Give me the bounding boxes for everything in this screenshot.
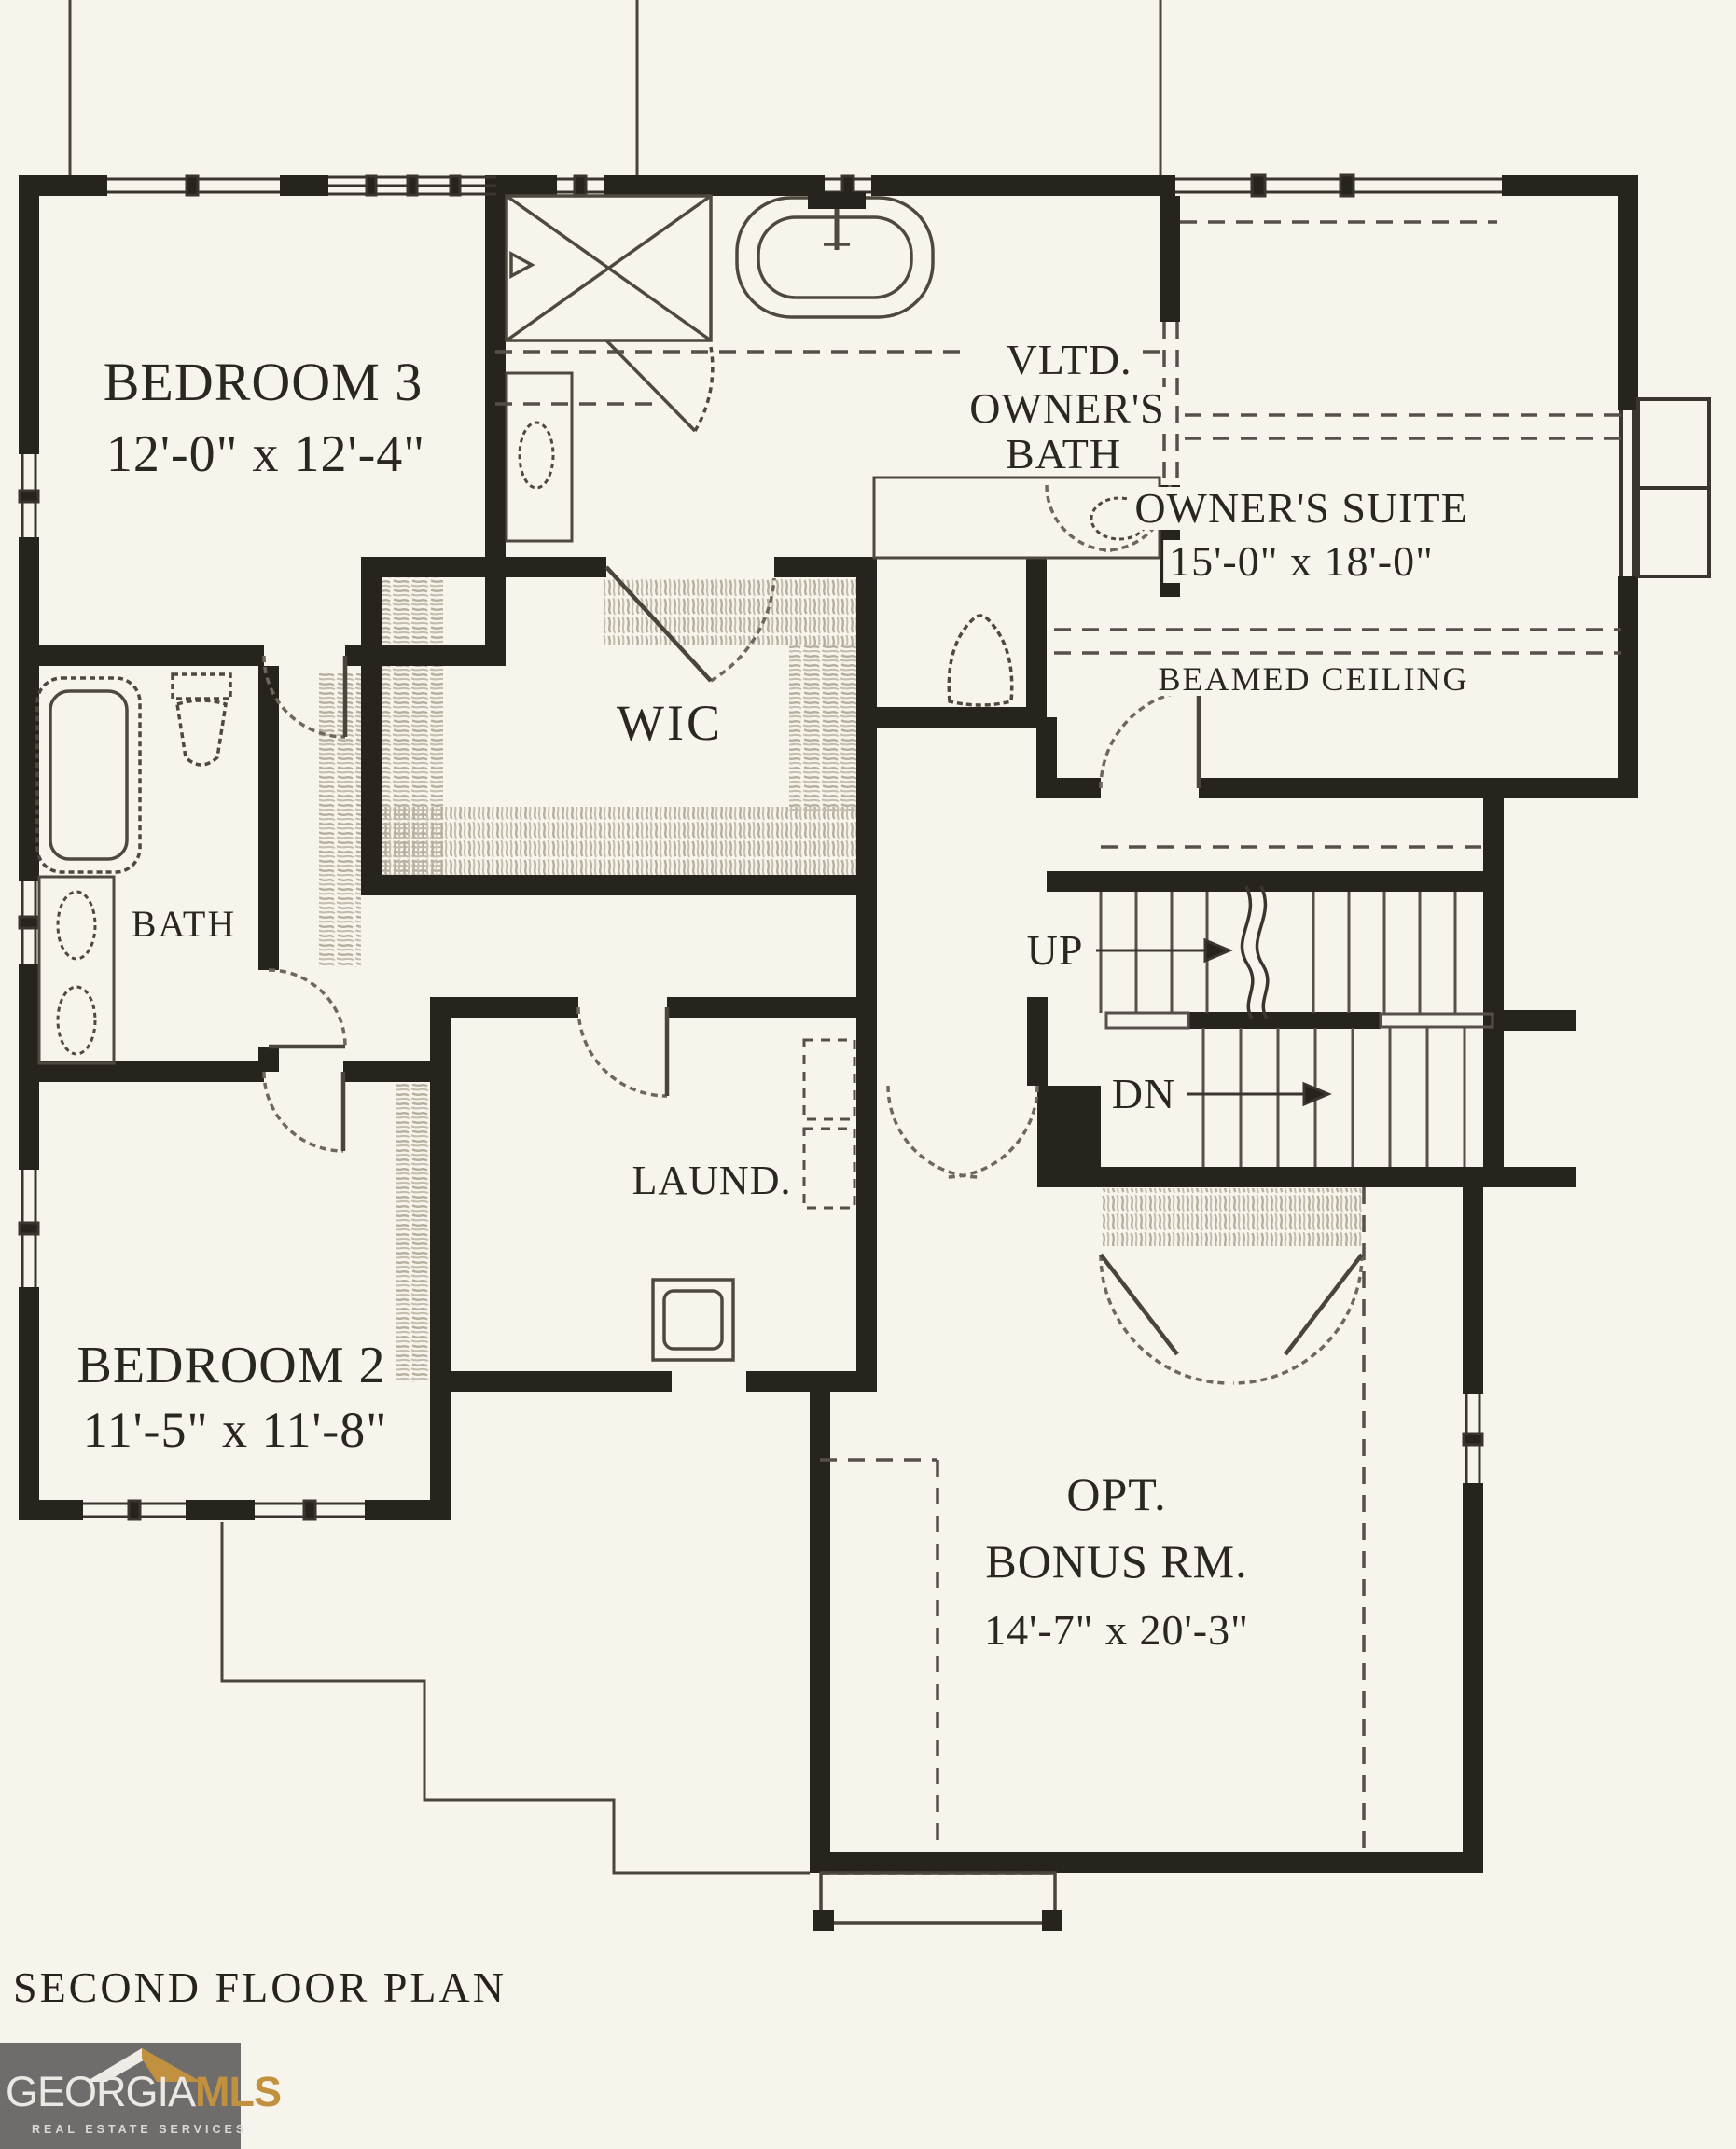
logo-wordmark: GEORGIAMLS [6,2071,281,2113]
room-label-bonus-line1: OPT. [1061,1471,1172,1518]
stair-label-dn: DN [1106,1073,1181,1116]
appliance-outlines [804,1040,854,1208]
room-label-owners-bath-line3: BATH [1000,433,1127,476]
room-label-owners-suite: OWNER'S SUITE [1129,487,1473,530]
laundry-sink [653,1280,733,1360]
logo-tagline: REAL ESTATE SERVICES [32,2123,247,2136]
room-label-wic: WIC [611,698,729,748]
logo-brand: GEORGIA [6,2068,195,2115]
room-label-bath: BATH [126,906,242,943]
toilet-water-closet [949,616,1011,705]
georgia-mls-logo: GEORGIAMLS REAL ESTATE SERVICES [0,2043,241,2149]
shower [507,196,713,431]
room-label-owners-bath-line2: OWNER'S [964,387,1171,430]
room-label-laundry: LAUND. [627,1160,798,1201]
stair-break-line [1242,886,1267,1019]
stairs [1101,892,1493,1167]
logo-brand2: MLS [195,2068,281,2115]
closet-shelving-hatch [319,577,1362,1382]
freestanding-tub [737,192,933,317]
vanity-sink-left [507,373,572,541]
toilet-hall-bath [173,674,230,765]
room-label-bedroom3: BEDROOM 3 [98,355,429,409]
stair-label-up: UP [1021,929,1090,972]
room-dims-bedroom3: 12'-0" x 12'-4" [101,428,431,480]
room-label-bonus-line2: BONUS RM. [979,1538,1253,1585]
vanity-sinks-hall-bath [39,877,114,1063]
room-dims-bonus: 14'-7" x 20'-3" [979,1609,1255,1652]
room-label-owners-bath-line1: VLTD. [1001,339,1138,381]
black-column [1037,1086,1101,1168]
bathtub [37,678,140,872]
vanity-sink-right [874,478,1160,558]
note-beamed-ceiling: BEAMED CEILING [1153,662,1475,696]
fireplace-bump [1621,399,1709,576]
plan-title: SECOND FLOOR PLAN [13,1962,507,2012]
room-dims-owners-suite: 15'-0" x 18'-0" [1163,540,1439,583]
floor-plan-drawing [0,0,1736,2149]
floor-plan-page: BEDROOM 3 12'-0" x 12'-4" VLTD. OWNER'S … [0,0,1736,2149]
room-dims-bedroom2: 11'-5" x 11'-8" [77,1405,394,1455]
room-label-bedroom2: BEDROOM 2 [71,1339,391,1392]
chimney-bump [813,1873,1062,1931]
